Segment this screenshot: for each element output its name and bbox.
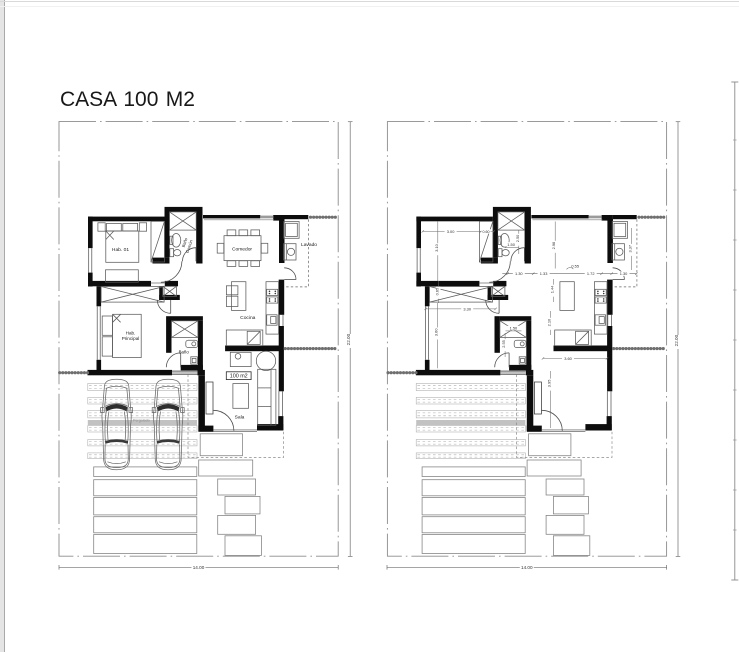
svg-text:Hab.: Hab. <box>126 330 136 335</box>
svg-text:14.00: 14.00 <box>193 565 205 570</box>
svg-text:2.10: 2.10 <box>546 318 551 326</box>
svg-text:100 m2: 100 m2 <box>230 374 248 380</box>
svg-text:Cocina: Cocina <box>240 315 256 321</box>
svg-text:Baño: Baño <box>179 350 190 355</box>
svg-text:1.50: 1.50 <box>507 242 515 247</box>
svg-text:22.00: 22.00 <box>346 333 351 345</box>
svg-text:3.30: 3.30 <box>463 306 471 311</box>
svg-text:1.30: 1.30 <box>515 271 523 276</box>
svg-text:Hab. 01: Hab. 01 <box>112 247 129 253</box>
svg-text:1.50: 1.50 <box>510 325 518 330</box>
svg-text:0.55: 0.55 <box>571 263 579 268</box>
svg-text:3.60: 3.60 <box>434 328 439 336</box>
svg-text:2.55: 2.55 <box>501 340 506 348</box>
svg-text:14.00: 14.00 <box>521 565 533 570</box>
svg-text:1.30: 1.30 <box>620 271 628 276</box>
svg-text:Lavado: Lavado <box>301 242 317 248</box>
svg-text:3.60: 3.60 <box>564 356 572 361</box>
svg-text:3.10: 3.10 <box>434 243 439 251</box>
svg-text:Comedor: Comedor <box>232 246 252 252</box>
svg-text:3.00: 3.00 <box>447 229 455 234</box>
svg-text:Sala: Sala <box>235 414 245 420</box>
svg-text:0.65: 0.65 <box>434 288 439 296</box>
svg-text:Pergolado: Pergolado <box>133 418 150 422</box>
svg-text:1.72: 1.72 <box>587 271 595 276</box>
svg-text:22.00: 22.00 <box>674 334 679 346</box>
svg-text:3.37: 3.37 <box>628 245 633 253</box>
svg-text:1.33: 1.33 <box>540 271 548 276</box>
svg-text:2.98: 2.98 <box>551 242 556 250</box>
svg-text:3.95: 3.95 <box>547 380 552 388</box>
svg-text:1.44: 1.44 <box>549 285 554 293</box>
svg-text:Principal: Principal <box>122 336 140 341</box>
svg-text:2.50: 2.50 <box>515 234 520 242</box>
svg-text:0.60: 0.60 <box>483 230 490 234</box>
svg-text:CASA 100 M2: CASA 100 M2 <box>60 88 195 111</box>
